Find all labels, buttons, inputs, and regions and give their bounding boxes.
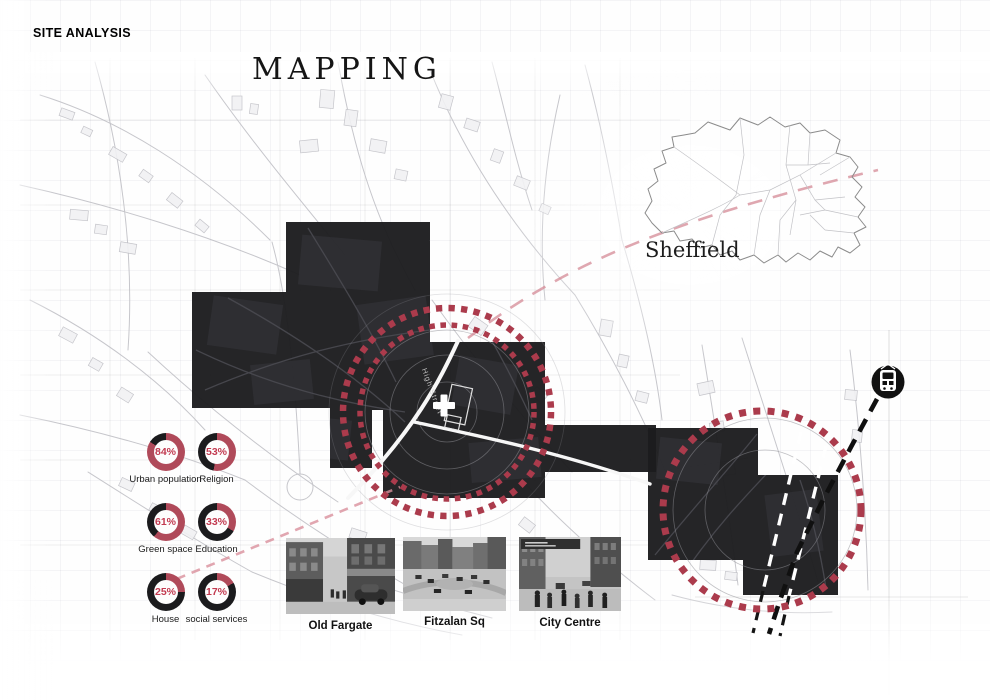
donut-value: 84% (155, 446, 176, 458)
donut-ring: 17% (198, 573, 236, 611)
photo-old-fargate (286, 538, 395, 614)
donut-label: Education (195, 544, 237, 555)
site-analysis-board: High Street (0, 0, 990, 700)
donut-chart: 84%Urban population (140, 433, 191, 503)
donut-label: Green space (138, 544, 192, 555)
donut-value: 61% (155, 516, 176, 528)
photo-caption-old-fargate: Old Fargate (286, 620, 395, 632)
site-tag: SITE ANALYSIS (33, 26, 131, 40)
donut-value: 25% (155, 586, 176, 598)
donut-ring: 33% (198, 503, 236, 541)
donut-ring: 53% (198, 433, 236, 471)
page-title: MAPPING (252, 52, 442, 87)
donut-label: social services (186, 614, 248, 625)
donut-chart: 25%House (140, 573, 191, 643)
donut-chart: 33%Education (191, 503, 242, 573)
donut-value: 33% (206, 516, 227, 528)
photo-caption-city-centre: City Centre (519, 617, 621, 629)
sheffield-label: Sheffield (645, 238, 740, 262)
donut-chart: 17%social services (191, 573, 242, 643)
donut-chart: 61%Green space (140, 503, 191, 573)
donut-chart: 53%Religion (191, 433, 242, 503)
tram-icon (872, 364, 905, 399)
donut-label: House (152, 614, 179, 625)
donut-grid: 84%Urban population53%Religion61%Green s… (140, 433, 242, 643)
donut-value: 17% (206, 586, 227, 598)
photo-caption-fitzalan-sq: Fitzalan Sq (403, 616, 506, 628)
photo-city-centre (519, 537, 621, 611)
donut-ring: 61% (147, 503, 185, 541)
donut-ring: 25% (147, 573, 185, 611)
donut-ring: 84% (147, 433, 185, 471)
photo-fitzalan-sq (403, 537, 506, 611)
donut-value: 53% (206, 446, 227, 458)
donut-label: Religion (199, 474, 233, 485)
